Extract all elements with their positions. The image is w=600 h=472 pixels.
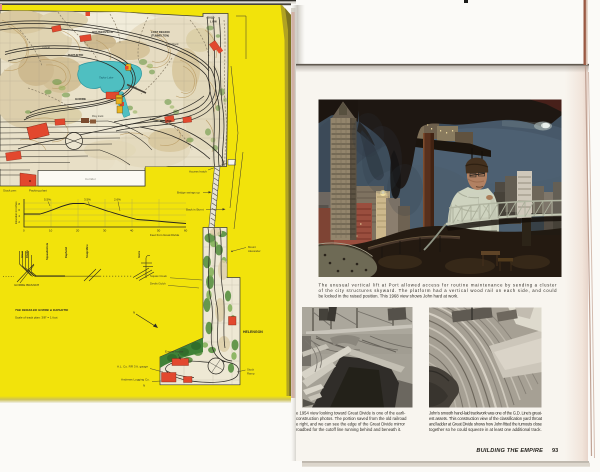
svg-text:Elevation in inches: Elevation in inches [14, 201, 18, 224]
svg-text:together so he could squeeze i: together so he could squeeze in at least… [429, 427, 542, 432]
svg-text:roadbed for the cutoff line ru: roadbed for the cutoff line running behi… [296, 427, 401, 432]
svg-text:30: 30 [103, 229, 107, 233]
svg-text:The unusual vertical lift at P: The unusual vertical lift at Port allowe… [319, 283, 558, 288]
svg-text:Andrews Logging Co.: Andrews Logging Co. [121, 378, 150, 382]
svg-text:Canyon: Canyon [128, 85, 137, 89]
svg-text:GORRE BRANCH: GORRE BRANCH [14, 283, 39, 287]
svg-text:BUILDING THE EMPIRE: BUILDING THE EMPIRE [476, 448, 543, 454]
svg-text:Rwy track: Rwy track [92, 114, 104, 118]
svg-text:DAPHETID: DAPHETID [68, 53, 84, 57]
svg-text:40: 40 [130, 229, 134, 233]
svg-text:e right, and we can see the ed: e right, and we can see the edge of the … [296, 422, 406, 427]
svg-text:20: 20 [76, 229, 80, 233]
svg-text:SQUAW-: SQUAW- [160, 119, 172, 123]
svg-text:HELENGON: HELENGON [243, 330, 263, 334]
svg-text:Engine house: Engine house [165, 350, 184, 354]
svg-text:Packing plant: Packing plant [29, 189, 47, 193]
svg-text:(TUNNELTON): (TUNNELTON) [151, 34, 169, 38]
svg-text:L HW: L HW [210, 20, 217, 24]
svg-text:10: 10 [49, 229, 53, 233]
svg-text:Devils Gulch: Devils Gulch [150, 282, 166, 286]
svg-text:Daphetid: Daphetid [64, 246, 68, 258]
svg-text:3.5%: 3.5% [84, 198, 91, 202]
svg-text:John's smooth hand-laid trackw: John's smooth hand-laid trackwork was on… [429, 411, 543, 416]
svg-text:Ramp: Ramp [247, 372, 255, 376]
svg-text:and ladder at Great Divide sho: and ladder at Great Divide shows how Joh… [429, 422, 543, 427]
svg-text:est assets. This construction: est assets. This construction view of th… [429, 416, 543, 421]
svg-text:of the city structures skyward: of the city structures skyward. The plat… [319, 288, 558, 293]
svg-text:A.L. Co. RR 3 ft. gauge: A.L. Co. RR 3 ft. gauge [117, 365, 148, 369]
svg-text:Access hatch: Access hatch [189, 170, 207, 174]
svg-text:Bridge swings up: Bridge swings up [177, 191, 200, 195]
svg-text:THE DERAILED GORRE & DAPHETID: THE DERAILED GORRE & DAPHETID [15, 308, 69, 312]
svg-text:N: N [133, 311, 135, 315]
svg-text:HOUSERVILLE: HOUSERVILLE [92, 30, 113, 34]
svg-text:Squaw Creek: Squaw Creek [150, 274, 167, 278]
svg-text:Squawbottom: Squawbottom [45, 242, 49, 260]
svg-text:Corridor: Corridor [85, 177, 96, 181]
svg-text:Scale of track plan: 3/8" = 1: Scale of track plan: 3/8" = 1 foot [15, 316, 58, 320]
svg-text:Taylor Lake: Taylor Lake [99, 76, 114, 80]
svg-text:5.5%: 5.5% [44, 198, 51, 202]
svg-text:Scalp Mine: Scalp Mine [85, 244, 89, 258]
svg-text:Lost Wood: Lost Wood [166, 42, 179, 46]
svg-text:93: 93 [552, 448, 558, 454]
svg-text:50: 50 [157, 229, 161, 233]
svg-text:Stock pen: Stock pen [3, 189, 17, 193]
svg-text:60: 60 [184, 229, 188, 233]
svg-text:2.6%: 2.6% [114, 198, 121, 202]
svg-text:Back is Burnt: Back is Burnt [186, 208, 204, 212]
svg-text:N: N [143, 384, 145, 388]
svg-text:LOST REGION: LOST REGION [151, 30, 170, 34]
svg-text:GORRE: GORRE [75, 97, 86, 101]
svg-text:Feet from Great Divide: Feet from Great Divide [150, 233, 180, 237]
svg-text:construction photos. The porti: construction photos. The portion saved f… [296, 416, 407, 421]
svg-text:Gorre: Gorre [137, 250, 141, 258]
svg-text:BALD: BALD [207, 16, 215, 20]
svg-text:be locked in the raised positi: be locked in the raised position. This 1… [319, 294, 459, 299]
svg-text:Great: Great [20, 251, 24, 258]
svg-text:Alexander: Alexander [248, 249, 261, 253]
svg-text:Tunnel: Tunnel [42, 45, 50, 49]
svg-text:e 1954 view looking toward Gre: e 1954 view looking toward Great Divide … [296, 411, 406, 416]
